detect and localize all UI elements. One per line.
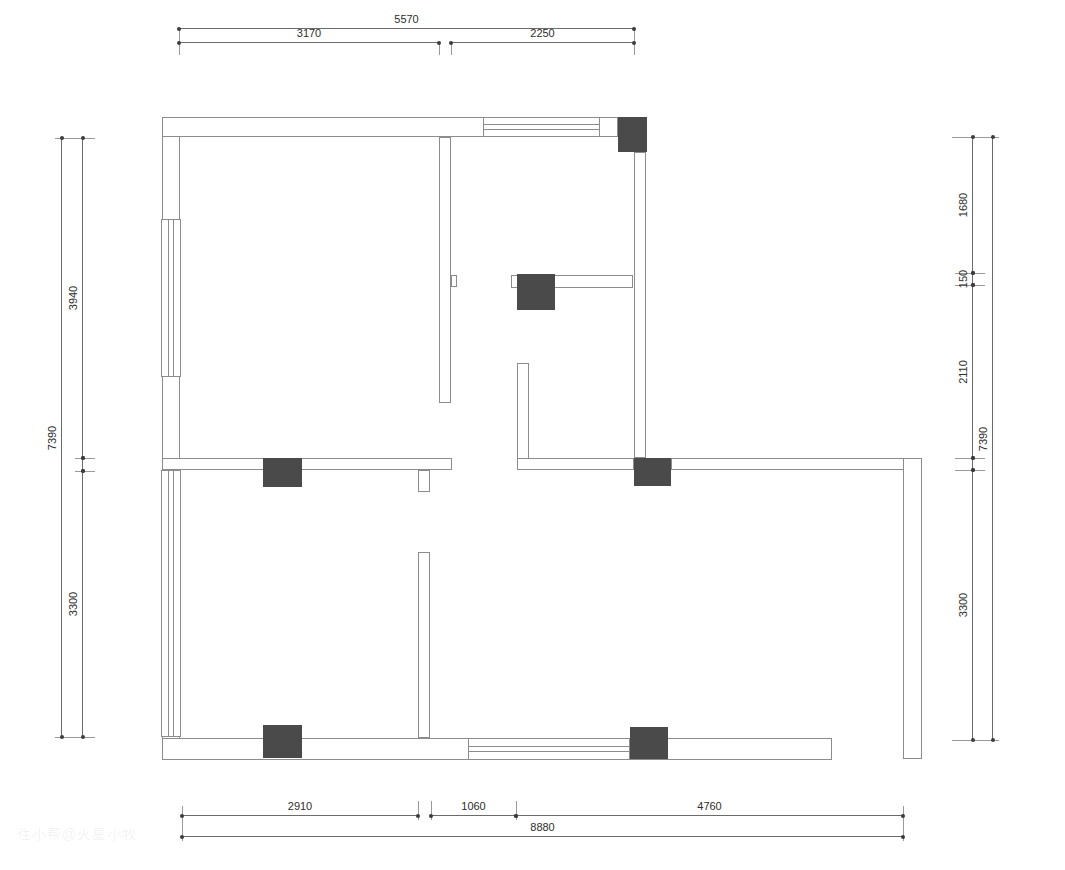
dimension-tick (177, 41, 181, 45)
dimension-line (972, 137, 973, 273)
dimension-tick (901, 835, 905, 839)
wall (162, 458, 452, 470)
extension-line (955, 458, 985, 459)
dimension-label: 2910 (288, 801, 312, 812)
dimension-tick (180, 835, 184, 839)
window (468, 738, 630, 760)
dimension-line (451, 42, 634, 43)
wall (439, 137, 451, 403)
wall (903, 458, 922, 759)
dimension-label: 3940 (68, 286, 79, 310)
dimension-label: 7390 (978, 426, 989, 450)
dimension-label: 150 (958, 270, 969, 288)
dimension-line (431, 815, 516, 816)
dimension-tick (180, 814, 184, 818)
window-pane-line (168, 220, 169, 376)
window-pane-line (469, 751, 629, 752)
dimension-line (516, 815, 903, 816)
dimension-tick (81, 136, 85, 140)
dimension-tick (971, 135, 975, 139)
dimension-tick (429, 814, 433, 818)
wall (517, 363, 529, 470)
floor-plan: 住小帮@火星小牧 5570317022502910106047608880739… (0, 0, 1065, 870)
dimension-tick (81, 735, 85, 739)
dimension-label: 1060 (461, 801, 485, 812)
dimension-tick (60, 136, 64, 140)
window (161, 470, 181, 737)
dimension-label: 2250 (530, 28, 554, 39)
dimension-tick (81, 456, 85, 460)
dimension-tick (991, 738, 995, 742)
dimension-tick (632, 27, 636, 31)
window-pane-line (469, 746, 629, 747)
dimension-tick (514, 814, 518, 818)
window-pane-line (173, 220, 174, 376)
structural-column (263, 458, 302, 487)
extension-line (955, 470, 985, 471)
wall (418, 552, 430, 738)
dimension-line (972, 470, 973, 740)
dimension-label: 2110 (958, 360, 969, 384)
dimension-label: 3300 (68, 592, 79, 616)
watermark: 住小帮@火星小牧 (17, 826, 137, 844)
structural-column (263, 725, 302, 758)
dimension-label: 8880 (530, 822, 554, 833)
dimension-line (179, 42, 439, 43)
dimension-tick (632, 41, 636, 45)
wall (517, 458, 634, 470)
extension-line (75, 471, 95, 472)
dimension-label: 7390 (47, 425, 58, 449)
dimension-label: 4760 (697, 801, 721, 812)
dimension-tick (437, 41, 441, 45)
dimension-tick (60, 735, 64, 739)
dimension-label: 5570 (394, 14, 418, 25)
dimension-tick (971, 456, 975, 460)
structural-column (634, 458, 671, 486)
structural-column (517, 274, 555, 310)
dimension-line (992, 137, 993, 740)
window-pane-line (484, 124, 599, 125)
dimension-tick (971, 738, 975, 742)
dimension-tick (991, 135, 995, 139)
dimension-tick (971, 468, 975, 472)
wall (418, 470, 430, 492)
dimension-label: 3300 (958, 593, 969, 617)
dimension-line (972, 285, 973, 458)
wall (451, 275, 457, 287)
dimension-tick (449, 41, 453, 45)
dimension-label: 1680 (958, 193, 969, 217)
dimension-line (82, 471, 83, 737)
dimension-tick (971, 283, 975, 287)
extension-line (75, 458, 95, 459)
dimension-line (61, 138, 62, 737)
structural-column (630, 727, 668, 759)
window-pane-line (484, 129, 599, 130)
wall (634, 152, 646, 458)
wall (671, 458, 922, 470)
dimension-label: 3170 (297, 28, 321, 39)
dimension-line (179, 28, 634, 29)
window (161, 219, 181, 377)
dimension-tick (81, 469, 85, 473)
dimension-tick (177, 27, 181, 31)
window-pane-line (168, 471, 169, 736)
dimension-tick (901, 814, 905, 818)
dimension-tick (416, 814, 420, 818)
dimension-line (182, 836, 903, 837)
dimension-line (182, 815, 418, 816)
dimension-line (82, 138, 83, 458)
dimension-tick (971, 271, 975, 275)
window-pane-line (173, 471, 174, 736)
structural-column (618, 117, 647, 152)
window (483, 117, 600, 137)
